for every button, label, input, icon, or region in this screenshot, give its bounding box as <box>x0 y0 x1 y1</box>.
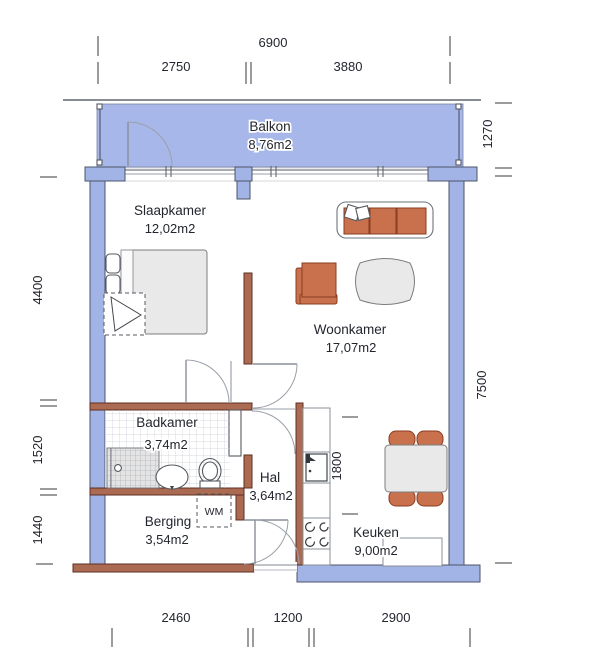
storage-area: 3,54m2 <box>145 532 188 547</box>
wall-storage-east <box>236 495 244 520</box>
bathroom: Badkamer 3,74m2 <box>105 410 230 490</box>
front-door-arc <box>255 520 299 564</box>
storage-label: Berging <box>145 514 192 529</box>
dining-set <box>385 431 447 506</box>
coffee-table <box>356 259 415 305</box>
livingroom-label: Woonkamer <box>314 322 387 337</box>
dim-bottom-right: 2900 <box>382 610 411 625</box>
hall: Hal 3,64m2 <box>249 470 292 503</box>
storage-room: WM Berging 3,54m2 <box>145 494 231 547</box>
dim-left-middle: 1520 <box>30 436 45 465</box>
bedroom-door-arc <box>186 360 229 403</box>
living-room: Woonkamer 17,07m2 <box>296 202 433 355</box>
dimension-left: 4400 1520 1440 <box>30 177 57 564</box>
wall-east <box>449 181 464 565</box>
kitchen: 1800 Keuken 9,00m2 <box>303 408 447 566</box>
armchair <box>296 263 337 304</box>
bedroom-area: 12,02m2 <box>145 221 196 236</box>
balcony-area: 8,76m2 <box>248 137 291 152</box>
kitchen-label: Keuken <box>353 525 399 540</box>
floorplan-drawing: 6900 2750 3880 Balkon 8,76m2 <box>0 0 600 660</box>
dim-right-balcony: 1270 <box>480 120 495 149</box>
kitchen-area: 9,00m2 <box>354 543 397 558</box>
sofa-pillow <box>356 206 371 221</box>
dim-top-right: 3880 <box>334 59 363 74</box>
balcony-floor <box>97 104 463 167</box>
dim-kitchen: 1800 <box>329 452 344 481</box>
wall-south-west <box>73 564 254 572</box>
dim-bottom-left: 2460 <box>162 610 191 625</box>
floorplan-canvas: 6900 2750 3880 Balkon 8,76m2 <box>0 0 600 660</box>
balcony-label: Balkon <box>249 119 290 134</box>
bathroom-area: 3,74m2 <box>144 437 187 452</box>
kitchen-sink <box>306 454 327 481</box>
pillow <box>106 275 120 294</box>
pillow <box>106 254 120 273</box>
balcony: Balkon 8,76m2 <box>63 100 481 167</box>
bed <box>104 250 207 335</box>
hall-label: Hal <box>260 470 280 485</box>
dim-top-left: 2750 <box>162 59 191 74</box>
wall-bathroom-north <box>90 403 252 410</box>
wall-west <box>90 181 105 565</box>
dimension-kitchen-counter: 1800 <box>329 417 358 514</box>
dining-table <box>385 445 447 492</box>
washing-machine-label: WM <box>205 506 224 518</box>
wall-kitchen-west <box>296 403 303 565</box>
sofa <box>337 202 433 238</box>
livingroom-area: 17,07m2 <box>326 340 377 355</box>
bedroom: Slaapkamer 12,02m2 <box>104 203 207 335</box>
dim-left-lower: 1440 <box>30 516 45 545</box>
bathroom-door-leaf <box>229 410 241 456</box>
dim-top-total: 6900 <box>259 35 288 50</box>
dimension-top: 6900 2750 3880 <box>98 35 450 84</box>
dim-bottom-middle: 1200 <box>274 610 303 625</box>
wall-pier-left <box>85 167 125 181</box>
kitchen-counter <box>303 408 330 565</box>
dimension-bottom: 2460 1200 2900 <box>112 610 470 647</box>
shower <box>107 448 159 488</box>
wall-pier-middle-stub <box>237 181 250 199</box>
bedroom-label: Slaapkamer <box>134 203 207 218</box>
wall-south-east <box>297 565 480 582</box>
wall-bathroom-east <box>244 455 252 488</box>
front-door-threshold <box>254 562 297 572</box>
shower-drain <box>115 465 122 472</box>
livingroom-door-arc <box>253 364 297 408</box>
storage-door-arc <box>244 520 288 564</box>
facade-window-wall <box>85 166 477 199</box>
hall-area: 3,64m2 <box>249 488 292 503</box>
bathroom-label: Badkamer <box>136 415 198 430</box>
wall-pier-middle <box>235 167 252 181</box>
dim-left-upper: 4400 <box>30 276 45 305</box>
wall-pier-right <box>428 167 477 181</box>
dimension-right: 1270 7500 <box>474 103 512 563</box>
dim-right-total: 7500 <box>474 371 489 400</box>
wall-bedroom-living <box>244 273 252 364</box>
bathroom-door-arc <box>252 411 295 454</box>
